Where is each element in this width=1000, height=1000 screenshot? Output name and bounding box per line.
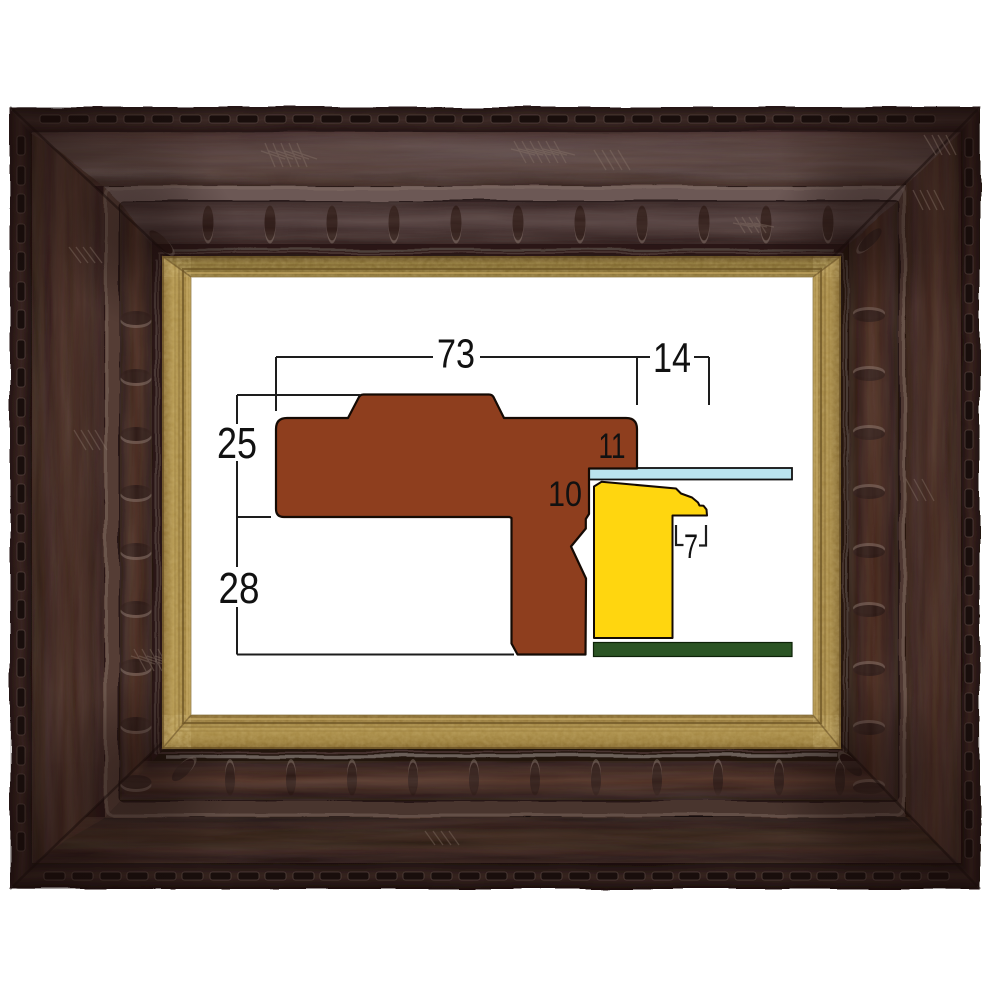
- svg-text:28: 28: [219, 564, 260, 613]
- svg-text:14: 14: [653, 334, 691, 381]
- svg-text:10: 10: [548, 475, 582, 514]
- svg-text:7: 7: [684, 528, 698, 566]
- svg-text:73: 73: [437, 331, 475, 377]
- svg-text:25: 25: [217, 419, 257, 468]
- svg-text:11: 11: [599, 427, 626, 466]
